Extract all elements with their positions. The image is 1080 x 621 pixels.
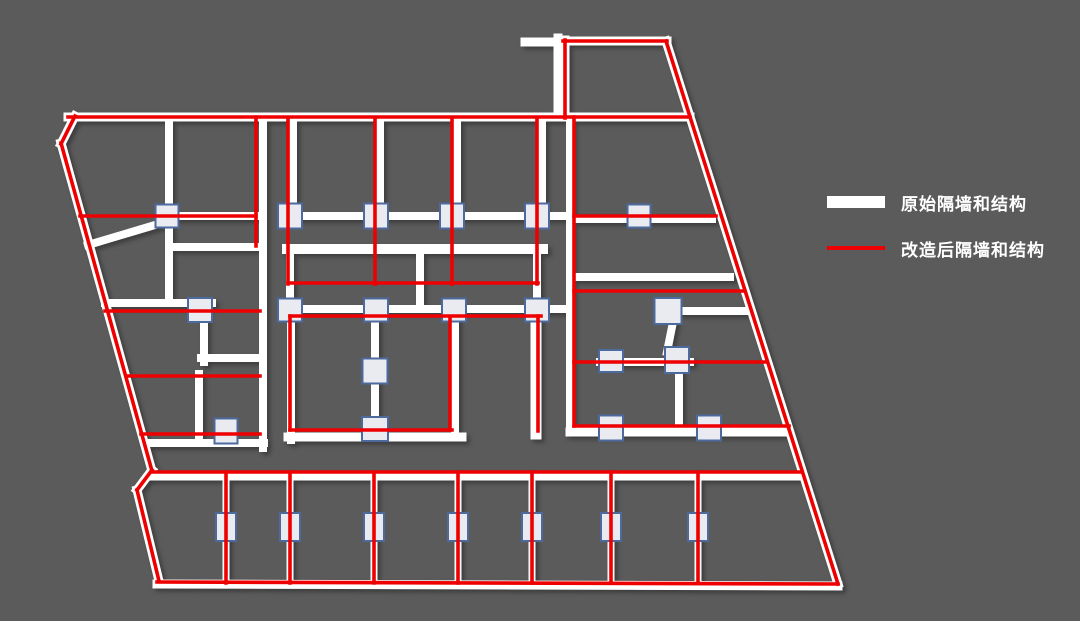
- column-marker: [665, 347, 689, 373]
- column-marker: [442, 299, 466, 322]
- column-marker: [364, 299, 388, 322]
- legend-label-original: 原始隔墙和结构: [901, 190, 1027, 215]
- original-wall-segment: [88, 222, 165, 245]
- column-marker: [278, 204, 302, 229]
- columns-layer: [156, 204, 722, 542]
- legend-item-renovated: 改造后隔墙和结构: [827, 234, 1077, 262]
- floor-plan: [0, 0, 1080, 621]
- renovated-wall-segment: [137, 490, 159, 581]
- legend-label-renovated: 改造后隔墙和结构: [901, 236, 1045, 261]
- original-wall-swatch: [827, 196, 885, 208]
- column-marker: [215, 419, 238, 444]
- floor-plan-canvas: [0, 0, 1080, 621]
- renovated-wall-swatch: [827, 246, 885, 250]
- column-marker: [697, 416, 721, 441]
- column-marker: [655, 298, 682, 324]
- legend-item-original: 原始隔墙和结构: [827, 188, 1077, 216]
- column-marker: [599, 416, 623, 441]
- screenshot-root: { "page": { "background_color": "#5b5b5b…: [0, 0, 1080, 621]
- renovated-wall-segment: [157, 582, 838, 584]
- column-marker: [363, 359, 388, 384]
- legend: 原始隔墙和结构 改造后隔墙和结构: [827, 188, 1077, 262]
